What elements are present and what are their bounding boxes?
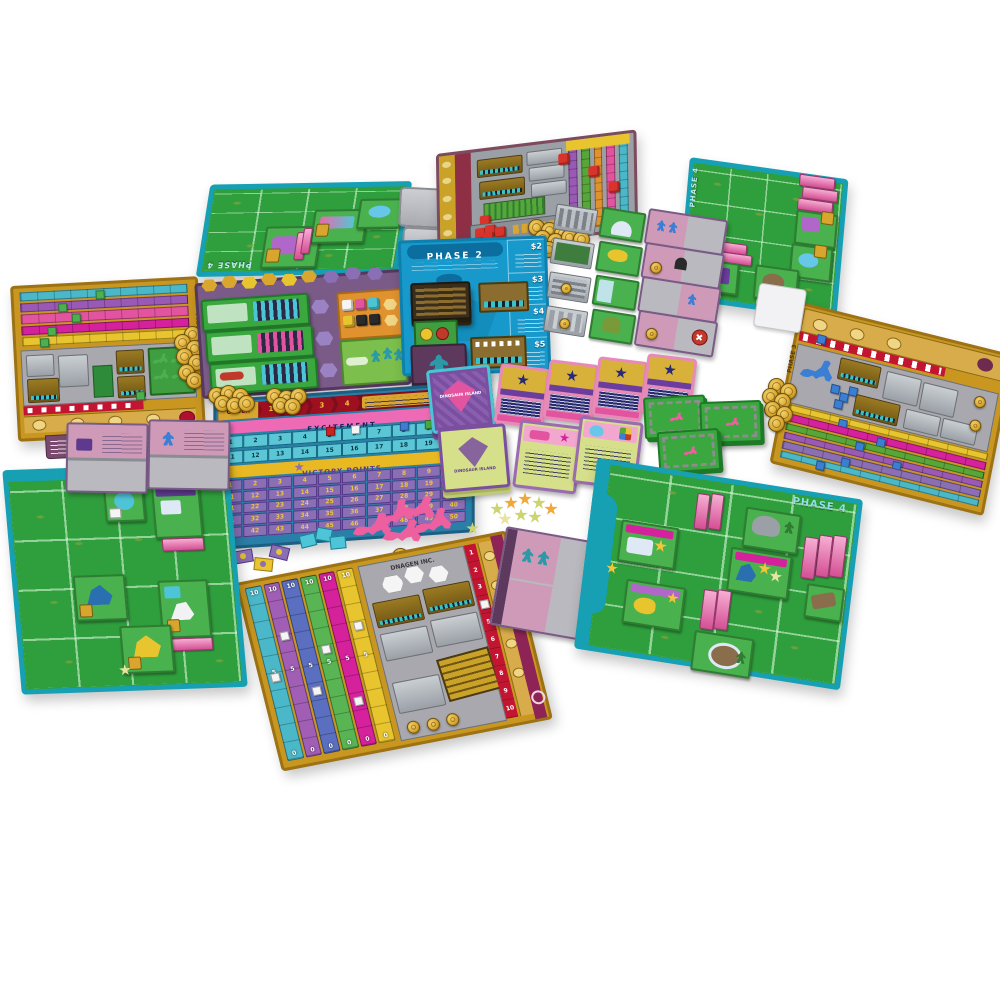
track-marker-cube — [815, 461, 825, 472]
track-marker-cube — [39, 338, 48, 347]
park-board-top-left: PHASE 4 — [196, 181, 413, 277]
dice-panel — [336, 288, 405, 340]
attraction-tile — [592, 275, 640, 312]
vp-cell: 35 — [318, 508, 342, 520]
vp-cell: 6 — [342, 470, 366, 482]
security-meeple-icon — [784, 521, 795, 534]
pond-art — [368, 205, 392, 217]
coin-pile — [266, 388, 316, 418]
lab-panel — [392, 674, 447, 714]
vp-cell: 32 — [243, 513, 267, 525]
contract-deck: DINOSAUR ISLAND — [437, 423, 510, 493]
track-marker-cube — [312, 686, 323, 696]
vp-cell: 15 — [318, 484, 342, 496]
security-tile — [742, 507, 802, 555]
vp-cell: 24 — [293, 498, 317, 510]
vp-cell: 7 — [367, 469, 391, 481]
excitement-marker-cube — [400, 421, 409, 431]
vp-cell: 43 — [268, 523, 292, 536]
price-label: $2 — [531, 242, 542, 251]
lab-building — [837, 357, 882, 389]
green-upgrade-tile — [92, 365, 114, 398]
vp-cell: 34 — [293, 509, 317, 521]
logo-diamond — [457, 436, 490, 469]
price-tier: $2 — [508, 239, 545, 273]
excitement-cell: 15 — [317, 443, 342, 458]
attraction-tile — [803, 583, 845, 623]
lab-building — [116, 349, 145, 374]
track-marker-cube — [353, 620, 364, 630]
attraction-tile — [588, 308, 636, 345]
visitor-meeple — [653, 539, 667, 554]
coin-pile — [760, 378, 806, 436]
crate-token — [128, 656, 142, 669]
visitor-meeple — [768, 569, 782, 584]
red-die — [558, 153, 569, 165]
forbidden-icon — [691, 328, 709, 346]
vp-cell: 18 — [392, 479, 416, 491]
market-hex-board — [194, 269, 412, 399]
hex-space — [319, 363, 338, 378]
lab-building — [477, 154, 523, 178]
green-cube — [136, 391, 145, 400]
hex-space — [315, 331, 334, 346]
excitement-cell: 12 — [243, 448, 268, 463]
paddock-tile — [726, 547, 793, 600]
market-display — [536, 198, 725, 361]
vp-cell: 9 — [417, 465, 441, 477]
specialist-card — [147, 419, 230, 490]
vp-cell: 12 — [243, 489, 267, 501]
track-marker-cube — [95, 290, 104, 299]
building-tile — [543, 305, 589, 337]
park-board-bottom-right: PHASE 4 — [574, 458, 863, 691]
track-marker-cube — [321, 645, 332, 655]
paddock-tile — [356, 198, 405, 229]
vp-cell: 5 — [318, 472, 342, 484]
building-tile — [553, 203, 599, 235]
vp-cell: 42 — [243, 525, 267, 538]
paddock-tile-stack — [657, 428, 722, 474]
vp-cell: 13 — [268, 487, 292, 499]
track-marker-cube — [353, 696, 364, 706]
attraction-tile — [598, 207, 646, 244]
table-scene: PHASE 4 — [0, 0, 1000, 1000]
lab-panel — [380, 625, 434, 661]
blueprint-deck — [410, 281, 471, 321]
building-tile — [549, 237, 595, 269]
vp-cell: 23 — [268, 499, 292, 511]
phase-label: PHASE 4 — [206, 260, 253, 270]
red-die — [588, 165, 599, 177]
crate-token — [315, 224, 330, 237]
specialist-meeple — [370, 350, 381, 363]
red-die — [608, 181, 619, 193]
excitement-cell: 18 — [391, 438, 416, 453]
vp-cell: 22 — [243, 501, 267, 513]
crate-token — [265, 248, 281, 262]
building-tile — [546, 271, 592, 303]
white-hex-slot — [380, 573, 406, 595]
crate-token — [821, 211, 835, 226]
vp-cell: 33 — [268, 511, 292, 523]
dna-chip-group — [300, 526, 352, 556]
lab-building — [27, 378, 60, 404]
objective-card — [592, 356, 649, 422]
phase2-market-board: PHASE 2 $2 $2 $3 $4 $5 — [398, 235, 552, 376]
contract-card — [512, 419, 584, 494]
price-label: $3 — [532, 274, 543, 283]
attraction-tile — [595, 241, 643, 278]
vp-cell: 25 — [318, 496, 342, 508]
excitement-cell: 14 — [293, 445, 318, 460]
excitement-cell: 13 — [268, 447, 293, 462]
track-marker-cube — [279, 631, 290, 641]
track-marker-cube — [270, 672, 281, 682]
attraction-tile — [617, 519, 679, 570]
lab-window — [26, 354, 55, 377]
lab-building — [372, 594, 425, 628]
specialist-card — [65, 422, 148, 493]
fence-piece — [162, 537, 205, 551]
vp-cell: 3 — [268, 476, 292, 488]
paddock-tile — [794, 209, 839, 249]
lab-building — [422, 580, 475, 614]
blank-card — [753, 283, 807, 334]
excitement-marker-cube — [351, 425, 360, 435]
paddock-tile — [119, 624, 175, 674]
vp-cell: 8 — [392, 467, 416, 479]
park-board-bottom-left — [2, 462, 247, 694]
crate-token — [814, 244, 828, 259]
crate-token — [79, 604, 93, 617]
dna-tracks — [17, 283, 192, 348]
lab-building — [479, 176, 525, 200]
vp-cell: 2 — [243, 477, 267, 489]
dino-meeple-pile — [352, 492, 456, 548]
vp-cell: 4 — [293, 474, 317, 486]
paddock-tile — [690, 630, 754, 679]
hex-space — [311, 299, 330, 314]
attraction-tile — [621, 579, 686, 632]
white-hex-slot — [427, 564, 451, 583]
vp-cell: 14 — [293, 486, 317, 498]
paddock-tile — [73, 574, 129, 622]
price-label: $5 — [534, 339, 545, 348]
vp-cell: 19 — [417, 477, 441, 489]
order-cell: 4 — [335, 395, 360, 413]
specialist-panel — [340, 336, 409, 386]
threat-marker-cube — [479, 599, 490, 609]
fence-piece — [168, 637, 213, 652]
excitement-marker-cube — [326, 427, 335, 437]
cold-storage — [531, 179, 567, 197]
coin-pile — [208, 385, 268, 419]
blue-cube — [816, 334, 826, 345]
deck-logo-text: DINOSAUR ISLAND — [450, 465, 500, 474]
excitement-cell: 17 — [367, 440, 392, 455]
track-marker-cube — [58, 303, 67, 312]
objective-card — [543, 359, 600, 425]
lab-window — [58, 354, 90, 388]
blueprint-tile — [478, 281, 529, 313]
track-marker-cube — [71, 314, 80, 323]
excitement-cell: 16 — [342, 441, 367, 456]
track-marker-cube — [47, 326, 56, 335]
objective-deck: DINOSAUR ISLAND — [426, 364, 496, 434]
title-banner: PHASE 2 — [407, 242, 503, 259]
specialist-meeple — [382, 347, 393, 360]
lab-panel — [430, 611, 484, 647]
